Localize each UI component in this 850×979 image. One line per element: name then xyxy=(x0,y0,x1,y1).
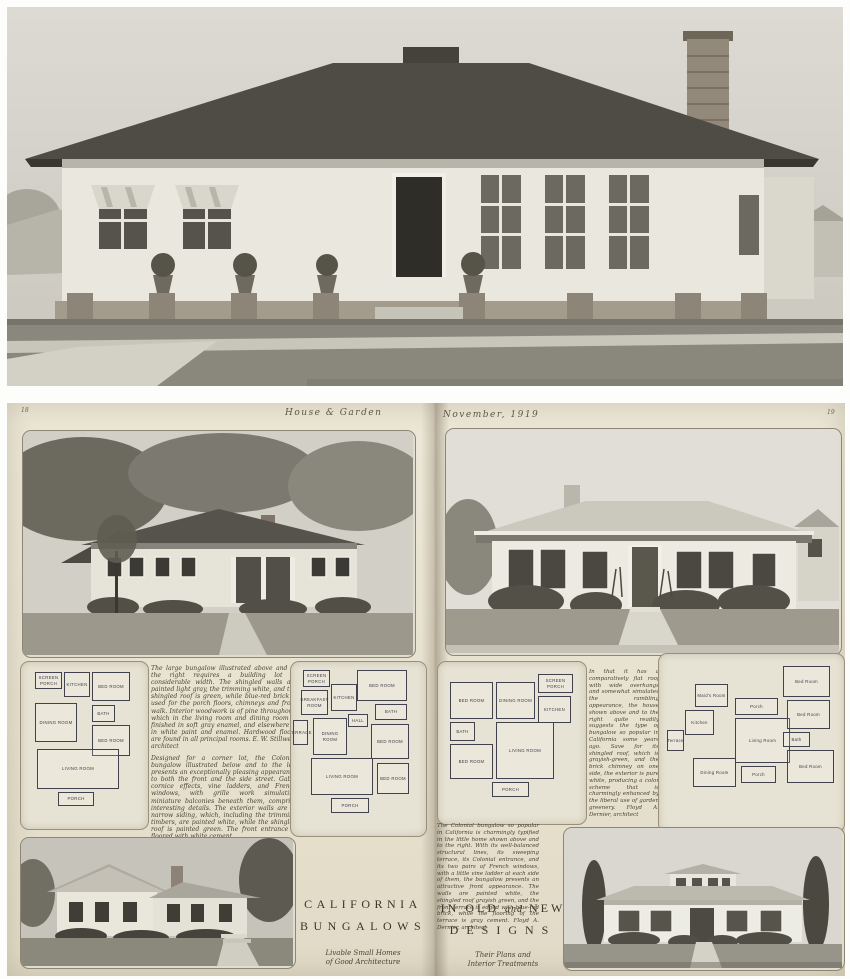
room-label: BATH xyxy=(450,722,475,741)
title-california: CALIFORNIA xyxy=(300,897,426,912)
subtitle-left-line2: of Good Architecture xyxy=(300,958,426,967)
left-top-house-photo xyxy=(22,430,416,658)
room-label: Bed Room xyxy=(783,666,830,697)
room-label: LIVING ROOM xyxy=(496,722,554,779)
issue-date: November, 1919 xyxy=(443,410,539,420)
main-bungalow-photo xyxy=(7,7,843,386)
left-bottom-house-photo xyxy=(20,837,296,969)
title-conjunction: and xyxy=(505,904,523,915)
room-label: LIVING ROOM xyxy=(311,758,373,795)
right-top-house-photo xyxy=(445,428,842,656)
room-label: PORCH xyxy=(58,792,94,806)
room-label: HALL xyxy=(348,714,368,727)
title-part1: IN OLD xyxy=(441,901,499,915)
room-label: BED ROOM xyxy=(357,670,407,701)
subtitle-right-line1: Their Plans and xyxy=(443,951,563,960)
main-bungalow-photo-art xyxy=(7,7,843,386)
right-bottom-house-art xyxy=(564,828,842,968)
right-top-house-art xyxy=(446,429,839,653)
room-label: BED ROOM xyxy=(450,744,493,779)
floor-plan-left-small: SCREEN PORCH KITCHEN BED ROOM DINING ROO… xyxy=(20,661,149,830)
subtitle-left-line1: Livable Small Homes xyxy=(300,949,426,958)
room-label: Bath xyxy=(783,732,810,747)
subtitle-right: Their Plans and Interior Treatments xyxy=(443,951,563,969)
page-number-left: 18 xyxy=(21,407,29,414)
room-label: KITCHEN xyxy=(331,684,357,711)
floor-plan-right-left: BED ROOM DINING ROOM SCREEN PORCH KITCHE… xyxy=(437,661,587,825)
room-label: Bed Room xyxy=(787,700,830,729)
room-label: SCREEN PORCH xyxy=(538,674,573,693)
section-title-left: CALIFORNIA BUNGALOWS xyxy=(300,897,426,934)
floor-plan-right-large: Maid's Room Kitchen Terrace Dining Room … xyxy=(658,653,845,833)
room-label: Maid's Room xyxy=(695,684,728,707)
section-title-right: IN OLD and NEW DESIGNS xyxy=(437,901,569,938)
page-number-right: 19 xyxy=(827,409,835,416)
room-label: Porch xyxy=(741,766,776,783)
room-label: KITCHEN xyxy=(64,672,90,697)
room-label: SCREEN PORCH xyxy=(35,672,62,689)
subtitle-left: Livable Small Homes of Good Architecture xyxy=(300,949,426,967)
room-label: Living Room xyxy=(735,718,790,763)
room-label: Dining Room xyxy=(693,758,736,787)
article-paragraph-bottom-left: Designed for a corner lot, the Colonial … xyxy=(151,755,297,840)
floor-plan-left-large: SCREEN PORCH BED ROOM BREAKFAST ROOM KIT… xyxy=(290,661,427,837)
room-label: DINING ROOM xyxy=(496,682,535,719)
room-label: BED ROOM xyxy=(92,672,130,701)
scanned-magazine-page: 18 House & Garden November, 1919 19 xyxy=(0,0,850,979)
title-designs: DESIGNS xyxy=(437,923,569,938)
left-bottom-house-art xyxy=(21,838,293,966)
room-label: TERRACE xyxy=(293,720,308,745)
room-label: BED ROOM xyxy=(377,763,409,794)
room-label: Kitchen xyxy=(685,710,714,735)
magazine-title: House & Garden xyxy=(285,408,382,418)
room-label: KITCHEN xyxy=(538,696,571,723)
room-label: Terrace xyxy=(667,730,684,751)
room-label: BED ROOM xyxy=(450,682,493,719)
room-label: PORCH xyxy=(492,782,529,797)
magazine-spread: 18 House & Garden November, 1919 19 xyxy=(7,403,845,976)
room-label: Porch xyxy=(735,698,778,715)
room-label: LIVING ROOM xyxy=(37,749,119,789)
article-paragraph-middle-right: In that it has a comparatively flat roof… xyxy=(589,669,659,819)
room-label: DINING ROOM xyxy=(313,718,347,755)
room-label: BED ROOM xyxy=(371,724,409,759)
room-label: SCREEN PORCH xyxy=(303,670,330,687)
room-label: Bed Room xyxy=(787,750,834,783)
right-bottom-house-photo xyxy=(563,827,845,971)
left-top-house-art xyxy=(23,431,413,655)
room-label: PORCH xyxy=(331,798,369,813)
title-part2: NEW xyxy=(529,901,565,915)
room-label: BATH xyxy=(375,704,407,720)
article-paragraph-top-left: The large bungalow illustrated above and… xyxy=(151,665,297,750)
title-in-old-and-new: IN OLD and NEW xyxy=(437,901,569,916)
room-label: BREAKFAST ROOM xyxy=(301,690,328,715)
title-bungalows: BUNGALOWS xyxy=(300,919,426,934)
subtitle-right-line2: Interior Treatments xyxy=(443,960,563,969)
room-label: DINING ROOM xyxy=(35,703,77,742)
room-label: BATH xyxy=(92,705,115,722)
